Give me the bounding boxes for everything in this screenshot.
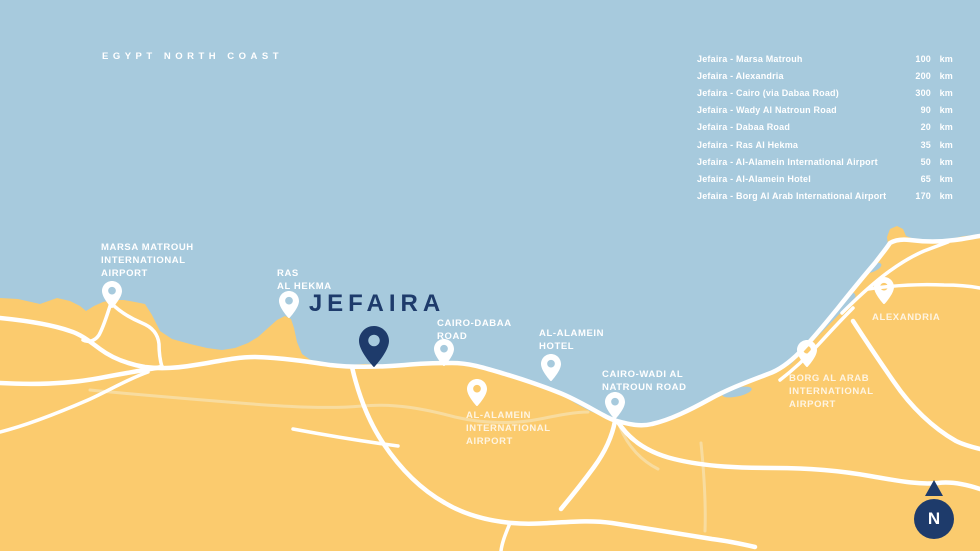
route-label: Jefaira - Borg Al Arab International Air… [697,191,901,201]
route-label: Jefaira - Al-Alamein Hotel [697,174,901,184]
map-pin-al-alamein-hotel[interactable] [541,354,561,387]
map-label-al-alamein-international-airport: AL-ALAMEININTERNATIONALAIRPORT [466,409,551,448]
route-unit: km [931,174,953,184]
route-label: Jefaira - Alexandria [697,71,901,81]
compass-north-arrow-icon [925,480,943,496]
route-unit: km [931,54,953,64]
distance-row: Jefaira - Al-Alamein Hotel65km [697,170,953,187]
route-label: Jefaira - Cairo (via Dabaa Road) [697,88,901,98]
route-unit: km [931,140,953,150]
map-label-al-alamein-hotel: AL-ALAMEINHOTEL [539,327,604,353]
jefaira-title: JEFAIRA [309,290,445,318]
map-stage: EGYPT NORTH COAST Jefaira - Marsa Matrou… [0,0,980,551]
distance-row: Jefaira - Marsa Matrouh100km [697,50,953,67]
route-unit: km [931,105,953,115]
distance-row: Jefaira - Alexandria200km [697,67,953,84]
route-distance: 20 [901,122,931,132]
map-label-borg-al-arab-international-airport: BORG AL ARABINTERNATIONALAIRPORT [789,372,874,411]
compass-icon: N [914,499,954,539]
distance-row: Jefaira - Borg Al Arab International Air… [697,188,953,205]
route-unit: km [931,88,953,98]
route-distance: 170 [901,191,931,201]
route-label: Jefaira - Marsa Matrouh [697,54,901,64]
map-pin-cairo-dabaa-road[interactable] [434,339,454,372]
route-unit: km [931,71,953,81]
map-pin-cairo-wadi-al-natroun-road[interactable] [605,392,625,425]
distance-row: Jefaira - Al-Alamein International Airpo… [697,153,953,170]
map-label-cairo-wadi-al-natroun-road: CAIRO-WADI ALNATROUN ROAD [602,368,687,394]
route-label: Jefaira - Dabaa Road [697,122,901,132]
compass-label: N [928,509,940,529]
route-label: Jefaira - Al-Alamein International Airpo… [697,157,901,167]
route-unit: km [931,157,953,167]
route-distance: 300 [901,88,931,98]
map-pin-marsa-matrouh-airport[interactable] [102,281,122,314]
route-unit: km [931,122,953,132]
distance-row: Jefaira - Dabaa Road20km [697,119,953,136]
route-distance: 35 [901,140,931,150]
route-distance: 65 [901,174,931,184]
distance-row: Jefaira - Ras Al Hekma35km [697,136,953,153]
map-pin-borg-al-arab-international-airport[interactable] [797,340,817,373]
map-pin-ras-al-hekma[interactable] [279,291,299,324]
route-label: Jefaira - Wady Al Natroun Road [697,105,901,115]
map-pin-jefaira[interactable] [359,326,389,372]
route-distance: 50 [901,157,931,167]
route-distance: 90 [901,105,931,115]
route-unit: km [931,191,953,201]
map-pin-alexandria[interactable] [874,277,894,310]
region-title: EGYPT NORTH COAST [102,51,283,62]
map-label-marsa-matrouh-airport: MARSA MATROUHINTERNATIONALAIRPORT [101,241,194,280]
distance-row: Jefaira - Wady Al Natroun Road90km [697,102,953,119]
route-distance: 100 [901,54,931,64]
map-pin-al-alamein-international-airport[interactable] [467,379,487,412]
map-label-cairo-dabaa-road: CAIRO-DABAAROAD [437,317,512,343]
map-label-alexandria: ALEXANDRIA [872,311,940,324]
route-distance: 200 [901,71,931,81]
distance-table: Jefaira - Marsa Matrouh100kmJefaira - Al… [697,50,953,205]
route-label: Jefaira - Ras Al Hekma [697,140,901,150]
distance-row: Jefaira - Cairo (via Dabaa Road)300km [697,84,953,101]
